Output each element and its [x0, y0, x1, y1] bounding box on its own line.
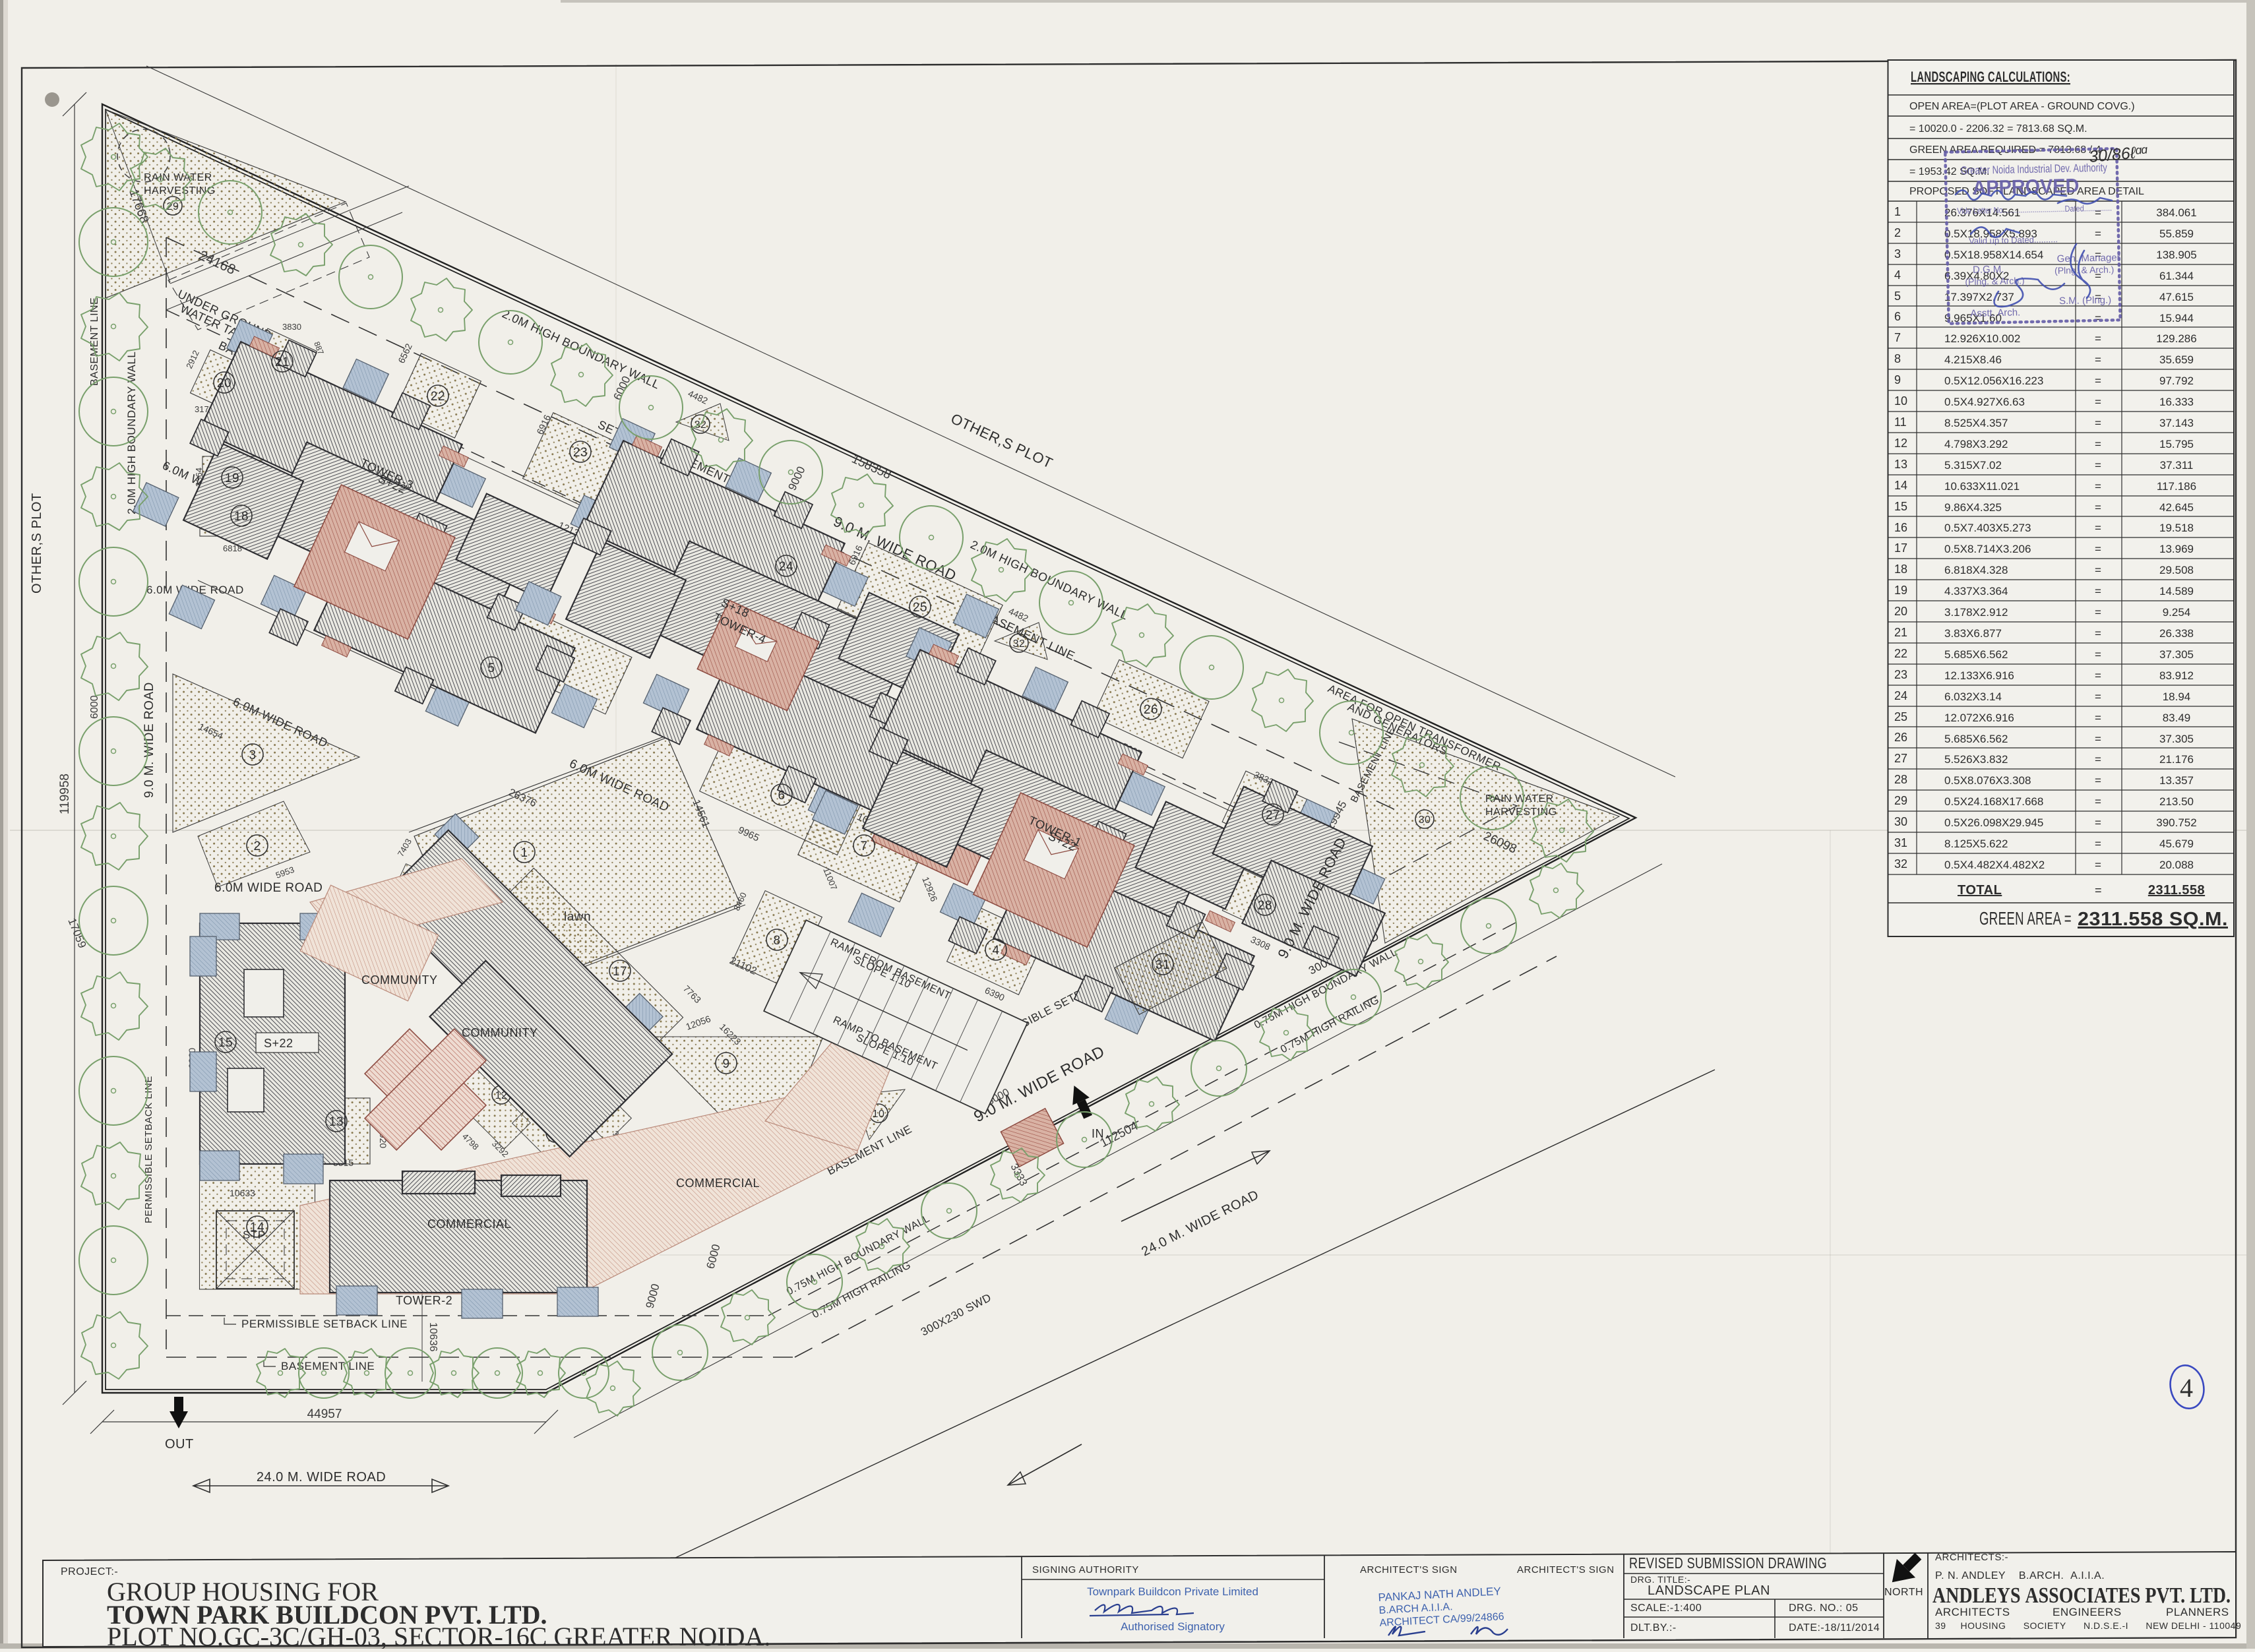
svg-text:37.305: 37.305: [2159, 733, 2194, 745]
svg-text:30: 30: [1419, 814, 1431, 826]
svg-text:4: 4: [1894, 268, 1901, 282]
svg-text:=: =: [2095, 501, 2101, 514]
svg-text:3: 3: [1894, 247, 1901, 260]
svg-text:37.143: 37.143: [2159, 417, 2194, 429]
svg-text:12.072X6.916: 12.072X6.916: [1944, 712, 2014, 724]
svg-text:17.397X2.737: 17.397X2.737: [1944, 291, 2014, 303]
svg-text:5: 5: [1894, 290, 1901, 303]
svg-text:0.5X7.403X5.273: 0.5X7.403X5.273: [1944, 522, 2031, 534]
svg-text:22: 22: [431, 390, 445, 404]
svg-text:ARCHITECT'S SIGN: ARCHITECT'S SIGN: [1360, 1564, 1458, 1576]
svg-text:0.5X8.714X3.206: 0.5X8.714X3.206: [1944, 543, 2031, 555]
svg-text:18.94: 18.94: [2163, 690, 2191, 703]
svg-text:=: =: [2095, 564, 2101, 576]
svg-text:10633: 10633: [230, 1188, 255, 1198]
svg-text:28: 28: [1894, 773, 1907, 786]
svg-text:1: 1: [520, 846, 528, 860]
svg-text:=: =: [2095, 753, 2101, 766]
svg-text:10636: 10636: [427, 1322, 439, 1352]
svg-text:Gen. Manager: Gen. Manager: [2057, 252, 2120, 264]
svg-text:9: 9: [722, 1057, 729, 1071]
svg-text:BASEMENT LINE: BASEMENT LINE: [281, 1360, 375, 1372]
svg-text:14.589: 14.589: [2159, 585, 2194, 597]
svg-text:SCALE:-1:400: SCALE:-1:400: [1630, 1603, 1702, 1614]
svg-text:8.125X5.622: 8.125X5.622: [1944, 838, 2008, 850]
svg-text:OPEN AREA=(PLOT AREA - GROUND: OPEN AREA=(PLOT AREA - GROUND COVG.): [1909, 101, 2135, 112]
svg-text:4.215X8.46: 4.215X8.46: [1944, 353, 2002, 366]
svg-text:11: 11: [1894, 415, 1907, 429]
svg-text:23: 23: [1894, 668, 1907, 681]
svg-text:RAIN WATER: RAIN WATER: [144, 172, 212, 183]
svg-text:4: 4: [992, 944, 999, 958]
svg-text:138.905: 138.905: [2156, 249, 2196, 261]
svg-text:1: 1: [1894, 205, 1901, 218]
svg-text:= 10020.0 - 2206.32 = 7813.68: = 10020.0 - 2206.32 = 7813.68 SQ.M.: [1909, 123, 2087, 135]
svg-text:6000: 6000: [89, 695, 100, 719]
svg-text:14: 14: [250, 1221, 264, 1235]
svg-text:=: =: [2095, 332, 2101, 345]
svg-text:OUT: OUT: [165, 1437, 194, 1452]
svg-text:=: =: [2095, 838, 2101, 850]
svg-text:13.969: 13.969: [2159, 543, 2194, 555]
svg-text:LANDSCAPE PLAN: LANDSCAPE PLAN: [1648, 1583, 1770, 1598]
svg-text:=: =: [2095, 712, 2101, 724]
svg-text:32: 32: [1013, 638, 1026, 650]
svg-text:32: 32: [695, 419, 707, 431]
svg-text:6.0M WIDE ROAD: 6.0M WIDE ROAD: [214, 881, 323, 895]
svg-text:5.685X6.562: 5.685X6.562: [1944, 648, 2008, 661]
svg-text:=: =: [2095, 774, 2101, 787]
svg-text:DLT.BY.:-: DLT.BY.:-: [1630, 1622, 1677, 1634]
svg-text:=: =: [2095, 627, 2101, 640]
svg-text:4.337X3.364: 4.337X3.364: [1944, 585, 2008, 597]
svg-text:3.83X6.877: 3.83X6.877: [1944, 627, 2002, 640]
svg-text:0.5X4.927X6.63: 0.5X4.927X6.63: [1944, 396, 2025, 408]
svg-text:29.508: 29.508: [2159, 564, 2194, 576]
svg-text:10: 10: [873, 1109, 885, 1120]
svg-text:42.645: 42.645: [2159, 501, 2194, 514]
svg-text:24: 24: [1894, 689, 1907, 702]
svg-text:9.254: 9.254: [2163, 606, 2191, 619]
svg-text:23: 23: [573, 446, 588, 460]
svg-text:15: 15: [1894, 500, 1907, 513]
svg-text:=: =: [2095, 438, 2101, 450]
svg-text:6: 6: [778, 789, 785, 803]
svg-text:6: 6: [1894, 310, 1901, 323]
svg-text:21.176: 21.176: [2159, 753, 2194, 766]
svg-text:13.357: 13.357: [2159, 774, 2194, 787]
svg-text:2.0M HIGH BOUNDARY WALL: 2.0M HIGH BOUNDARY WALL: [125, 352, 138, 514]
svg-text:=: =: [2095, 648, 2101, 661]
svg-text:5.685X6.562: 5.685X6.562: [1944, 733, 2008, 745]
svg-text:OTHER,S PLOT: OTHER,S PLOT: [30, 493, 44, 594]
svg-text:COMMERCIAL: COMMERCIAL: [427, 1217, 511, 1231]
svg-text:=: =: [2095, 353, 2101, 366]
svg-text:39 HOUSING SOCIETY: 39 HOUSING SOCIETY N.D.S.E.-I NEW DELHI …: [1935, 1620, 2241, 1631]
svg-text:14: 14: [1894, 479, 1907, 492]
svg-text:26: 26: [1894, 731, 1907, 744]
svg-text:18: 18: [1894, 563, 1907, 576]
svg-text:2: 2: [1894, 226, 1901, 239]
svg-text:(Plng. & Arch.): (Plng. & Arch.): [2054, 264, 2115, 276]
svg-text:ENGINEERS: ENGINEERS: [2053, 1606, 2122, 1618]
svg-text:=: =: [2095, 459, 2101, 472]
svg-text:=: =: [2095, 585, 2101, 597]
svg-text:REVISED SUBMISSION DRAWING: REVISED SUBMISSION DRAWING: [1629, 1554, 1827, 1572]
svg-text:=: =: [2095, 417, 2101, 429]
svg-text:3830: 3830: [282, 322, 301, 332]
svg-text:117.186: 117.186: [2157, 480, 2196, 493]
svg-text:61.344: 61.344: [2159, 270, 2194, 282]
svg-text:=: =: [2095, 859, 2101, 871]
svg-text:Valid up to Dated..........: Valid up to Dated..........: [1969, 234, 2058, 246]
svg-text:0.5X8.076X3.308: 0.5X8.076X3.308: [1944, 774, 2031, 787]
svg-text:3.178X2.912: 3.178X2.912: [1944, 606, 2008, 619]
svg-text:7: 7: [1894, 331, 1901, 344]
svg-text:37.311: 37.311: [2160, 459, 2194, 472]
svg-text:27: 27: [1894, 752, 1907, 765]
svg-text:15.944: 15.944: [2159, 312, 2194, 324]
svg-text:IN: IN: [1092, 1127, 1104, 1140]
svg-text:=: =: [2095, 396, 2101, 408]
svg-text:7: 7: [860, 840, 867, 853]
svg-text:LANDSCAPING CALCULATIONS:: LANDSCAPING CALCULATIONS:: [1911, 69, 2070, 85]
svg-text:5.526X3.832: 5.526X3.832: [1944, 753, 2008, 766]
svg-text:PROJECT:-: PROJECT:-: [61, 1566, 118, 1577]
svg-text:9: 9: [1894, 373, 1901, 386]
svg-text:S+22: S+22: [264, 1037, 293, 1050]
svg-text:=: =: [2095, 375, 2101, 387]
svg-text:=: =: [2095, 733, 2101, 745]
svg-text:ARCHITECTS: ARCHITECTS: [1935, 1606, 2010, 1618]
svg-text:83.912: 83.912: [2159, 669, 2194, 682]
svg-text:=: =: [2095, 480, 2101, 493]
svg-text:=: =: [2095, 312, 2101, 324]
svg-text:ARCHITECTS:-: ARCHITECTS:-: [1935, 1552, 2008, 1563]
svg-text:PERMISSIBLE SETBACK LINE: PERMISSIBLE SETBACK LINE: [143, 1076, 154, 1223]
svg-text:D.G.M.: D.G.M.: [1973, 264, 2004, 276]
svg-text:5.315X7.02: 5.315X7.02: [1944, 459, 2002, 472]
svg-text:20: 20: [217, 377, 232, 390]
svg-text:13: 13: [329, 1115, 344, 1129]
svg-text:27: 27: [1266, 809, 1280, 822]
svg-text:COMMUNITY: COMMUNITY: [462, 1026, 538, 1039]
svg-text:5: 5: [487, 661, 495, 675]
svg-text:97.792: 97.792: [2159, 375, 2194, 387]
svg-text:18: 18: [234, 510, 249, 524]
svg-text:19: 19: [225, 472, 239, 485]
svg-text:30: 30: [1894, 815, 1907, 828]
svg-text:9.86X4.325: 9.86X4.325: [1944, 501, 2002, 514]
svg-text:25: 25: [913, 601, 927, 615]
svg-text:PERMISSIBLE SETBACK LINE: PERMISSIBLE SETBACK LINE: [241, 1318, 408, 1330]
svg-text:PLOT NO.GC-3C/GH-03, SECTOR-16: PLOT NO.GC-3C/GH-03, SECTOR-16C GREATER …: [107, 1622, 770, 1649]
svg-text:=: =: [2095, 669, 2101, 682]
svg-text:4.798X3.292: 4.798X3.292: [1944, 438, 2008, 450]
svg-text:24: 24: [779, 560, 793, 574]
svg-text:8.525X4.357: 8.525X4.357: [1944, 417, 2008, 429]
svg-text:=: =: [2095, 884, 2102, 897]
svg-text:22: 22: [1894, 647, 1907, 660]
svg-text:=: =: [2095, 522, 2101, 534]
svg-text:GREEN AREA =: GREEN AREA =: [1979, 908, 2072, 929]
svg-text:25: 25: [1894, 710, 1907, 723]
svg-text:0.5X4.482X4.482X2: 0.5X4.482X4.482X2: [1944, 859, 2045, 871]
svg-text:213.50: 213.50: [2159, 795, 2194, 808]
svg-text:RAIN WATER: RAIN WATER: [1485, 793, 1554, 805]
svg-text:21: 21: [275, 355, 290, 369]
svg-text:P. N. ANDLEY B.ARCH. A.I.I: P. N. ANDLEY B.ARCH. A.I.I.A.: [1935, 1570, 2105, 1581]
svg-text:2311.558 SQ.M.: 2311.558 SQ.M.: [2078, 909, 2228, 930]
svg-text:129.286: 129.286: [2156, 332, 2196, 345]
svg-text:12.133X6.916: 12.133X6.916: [1944, 669, 2014, 682]
svg-text:6.032X3.14: 6.032X3.14: [1944, 690, 2002, 703]
svg-text:19: 19: [1894, 584, 1907, 597]
svg-text:TOTAL: TOTAL: [1958, 883, 2002, 898]
svg-text:12.926X10.002: 12.926X10.002: [1944, 332, 2020, 345]
svg-text:31: 31: [1156, 958, 1170, 972]
svg-text:S.M. (Plng.): S.M. (Plng.): [2059, 294, 2112, 307]
svg-text:28: 28: [1258, 899, 1272, 913]
svg-text:0.5X24.168X17.668: 0.5X24.168X17.668: [1944, 795, 2043, 808]
svg-text:10.633X11.021: 10.633X11.021: [1944, 480, 2020, 493]
svg-text:10: 10: [1894, 394, 1907, 408]
svg-text:Authorised Signatory: Authorised Signatory: [1121, 1620, 1225, 1633]
svg-text:32: 32: [1894, 857, 1907, 871]
svg-text:20: 20: [1894, 605, 1907, 618]
svg-text:3: 3: [249, 749, 256, 762]
svg-text:8: 8: [773, 934, 780, 948]
svg-text:0.5X12.056X16.223: 0.5X12.056X16.223: [1944, 375, 2043, 387]
svg-text:6.818X4.328: 6.818X4.328: [1944, 564, 2008, 576]
svg-text:COMMERCIAL: COMMERCIAL: [676, 1177, 760, 1190]
svg-text:=: =: [2095, 543, 2101, 555]
svg-text:DATE:-18/11/2014: DATE:-18/11/2014: [1789, 1622, 1880, 1634]
svg-text:Asstt. Arch.: Asstt. Arch.: [1970, 307, 2020, 319]
svg-text:15: 15: [218, 1036, 233, 1050]
svg-text:HARVESTING: HARVESTING: [144, 185, 216, 197]
svg-text:2311.558: 2311.558: [2148, 883, 2205, 898]
svg-text:17: 17: [613, 965, 627, 979]
svg-text:35.659: 35.659: [2159, 353, 2194, 366]
svg-text:DRG. NO.: 05: DRG. NO.: 05: [1789, 1603, 1859, 1614]
svg-text:4: 4: [2180, 1373, 2193, 1403]
svg-text:16: 16: [1894, 521, 1907, 534]
svg-text:13: 13: [1894, 458, 1907, 471]
svg-text:26.338: 26.338: [2159, 627, 2194, 640]
svg-text:ANDLEYS ASSOCIATES PVT. LTD.: ANDLEYS ASSOCIATES PVT. LTD.: [1932, 1583, 2231, 1608]
svg-text:8: 8: [1894, 352, 1901, 365]
svg-text:Townpark Buildcon Private Limi: Townpark Buildcon Private Limited: [1087, 1585, 1258, 1598]
svg-text:COMMUNITY: COMMUNITY: [361, 973, 438, 987]
svg-text:=: =: [2095, 606, 2101, 619]
svg-text:0.5X18.958X14.654: 0.5X18.958X14.654: [1944, 249, 2043, 261]
svg-text:19.518: 19.518: [2159, 522, 2194, 534]
svg-text:PLANNERS: PLANNERS: [2166, 1606, 2229, 1618]
svg-text:29: 29: [1894, 794, 1907, 807]
svg-text:21: 21: [1894, 626, 1907, 639]
svg-text:=: =: [2095, 690, 2101, 703]
svg-text:119958: 119958: [58, 774, 72, 814]
svg-text:26: 26: [1144, 703, 1158, 717]
svg-text:20.088: 20.088: [2159, 859, 2194, 871]
svg-text:45.679: 45.679: [2159, 838, 2194, 850]
svg-text:2: 2: [253, 840, 261, 853]
svg-text:384.061: 384.061: [2156, 206, 2196, 219]
svg-text:16.333: 16.333: [2159, 396, 2194, 408]
svg-text:47.615: 47.615: [2159, 291, 2194, 303]
svg-text:17: 17: [1894, 541, 1907, 555]
svg-text:=: =: [2095, 228, 2101, 240]
svg-text:NORTH: NORTH: [1884, 1587, 1923, 1598]
svg-text:9.0 M. WIDE ROAD: 9.0 M. WIDE ROAD: [142, 682, 156, 798]
svg-text:37.305: 37.305: [2159, 648, 2194, 661]
svg-text:12: 12: [1894, 437, 1907, 450]
svg-text:TOWER-2: TOWER-2: [396, 1294, 452, 1307]
svg-text:83.49: 83.49: [2163, 712, 2191, 724]
svg-text:44957: 44957: [307, 1407, 342, 1421]
svg-text:=: =: [2095, 816, 2101, 829]
svg-text:15.795: 15.795: [2159, 438, 2194, 450]
svg-text:55.859: 55.859: [2159, 228, 2194, 240]
svg-text:SIGNING AUTHORITY: SIGNING AUTHORITY: [1032, 1564, 1139, 1576]
svg-text:0.5X26.098X29.945: 0.5X26.098X29.945: [1944, 816, 2043, 829]
svg-text:24.0 M. WIDE ROAD: 24.0 M. WIDE ROAD: [257, 1470, 386, 1484]
svg-text:=: =: [2095, 795, 2101, 808]
svg-text:390.752: 390.752: [2156, 816, 2196, 829]
svg-text:31: 31: [1894, 836, 1907, 849]
svg-text:ARCHITECT'S SIGN: ARCHITECT'S SIGN: [1517, 1564, 1615, 1576]
